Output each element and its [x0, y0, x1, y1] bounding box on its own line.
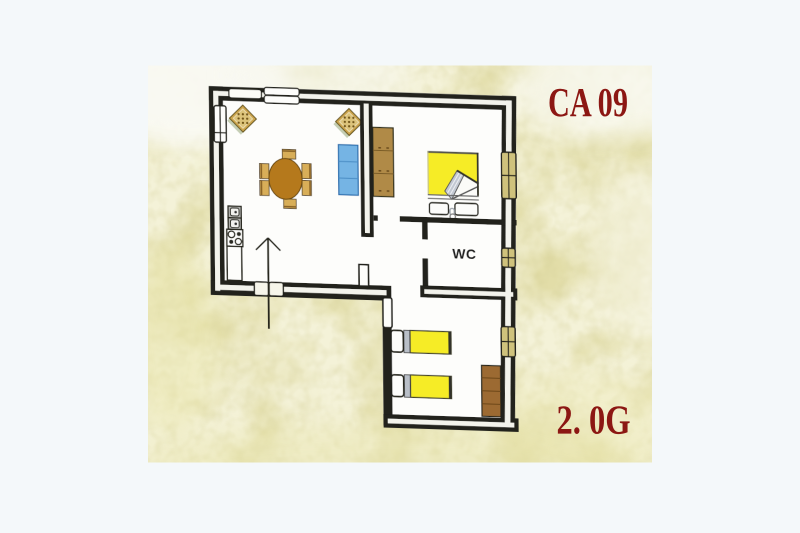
svg-text:CA 09: CA 09: [548, 79, 628, 125]
svg-text:2. 0G: 2. 0G: [557, 397, 631, 443]
svg-text:WC: WC: [452, 245, 476, 262]
